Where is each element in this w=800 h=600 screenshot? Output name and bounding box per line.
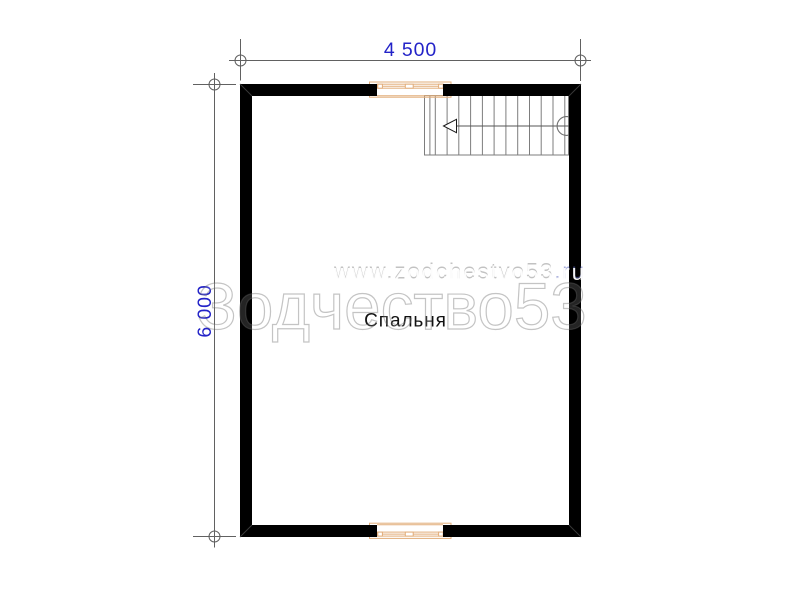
- svg-text:4 500: 4 500: [384, 39, 437, 61]
- svg-text:Зодчество53: Зодчество53: [197, 270, 586, 343]
